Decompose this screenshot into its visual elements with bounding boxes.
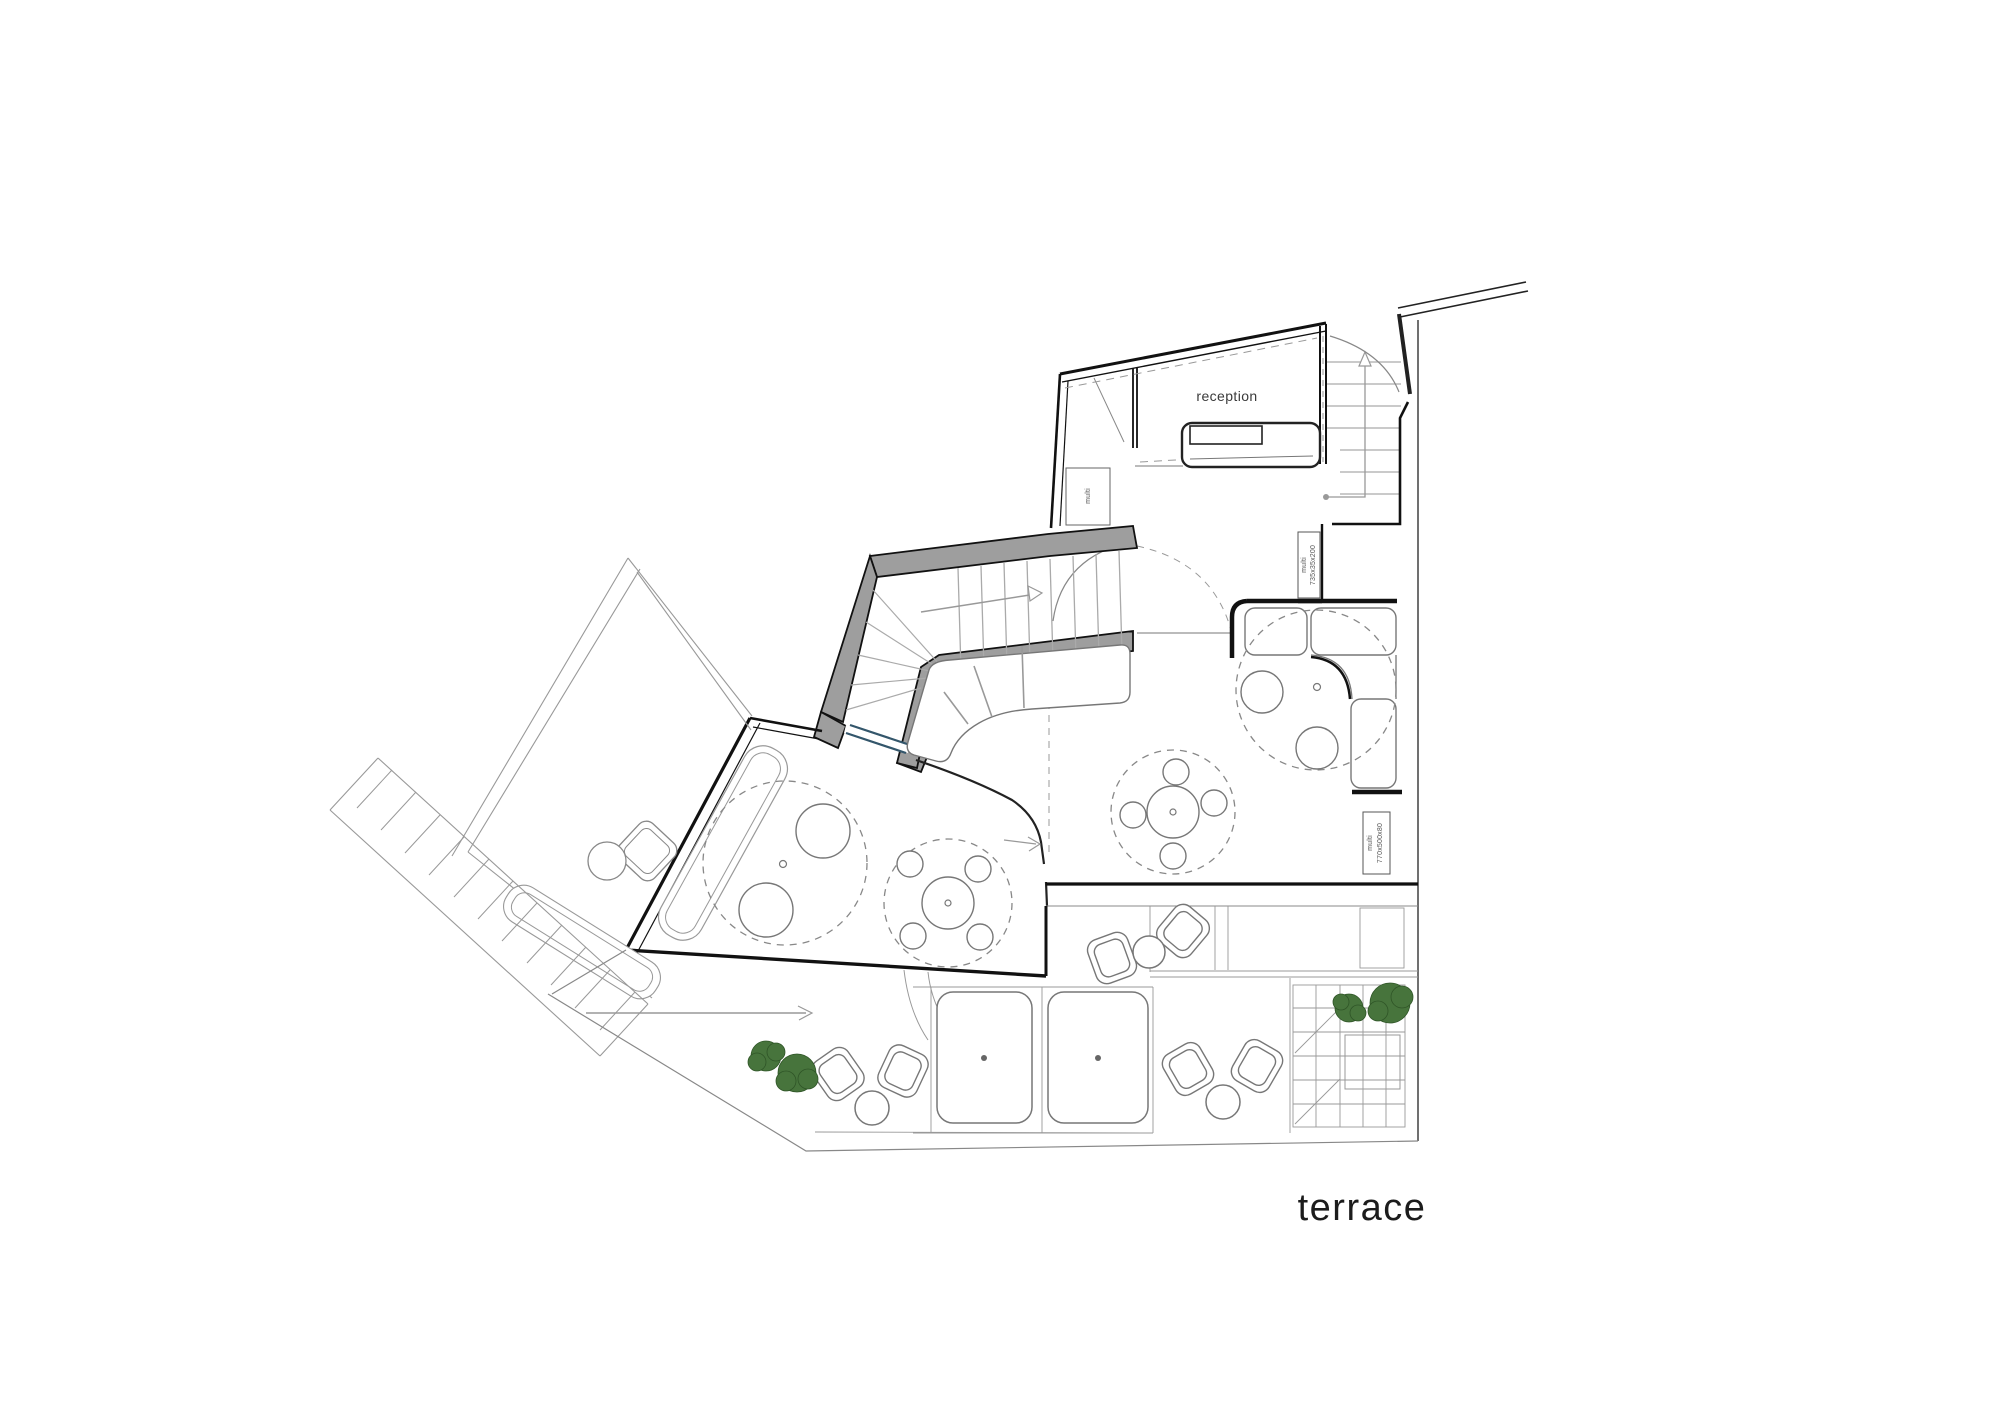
terrace-door-arrow <box>1004 840 1036 844</box>
sofa-side-table <box>1296 727 1338 769</box>
terrace-chair <box>1227 1036 1286 1097</box>
daybed-center-dot <box>1095 1055 1101 1061</box>
left-room-north-wall <box>750 718 822 731</box>
tree-foliage <box>767 1043 785 1061</box>
terrace-table <box>855 1091 889 1125</box>
tree-foliage <box>798 1069 818 1089</box>
floor-plan-svg: multi reception multi 735x35x200 <box>0 0 2000 1413</box>
dining-table-dot <box>1170 809 1176 815</box>
terrace-chair <box>1084 929 1139 987</box>
partition-door-leaf <box>1094 378 1124 442</box>
tree-foliage <box>1350 1005 1366 1021</box>
cabinet-tall-label-line2: 735x35x200 <box>1310 545 1317 585</box>
tree-foliage <box>1333 994 1349 1010</box>
sofa-cushion <box>1311 608 1396 655</box>
round-table <box>796 804 850 858</box>
outdoor-stair-treads <box>357 770 635 1030</box>
deck-grid-inner-box <box>1345 1035 1400 1089</box>
reception-room: multi reception <box>1051 323 1326 528</box>
reception-top-wall <box>1060 323 1326 374</box>
daybed-center-dot <box>981 1055 987 1061</box>
building-outline <box>1398 282 1528 1141</box>
dining-chair <box>1120 802 1146 828</box>
dining-group-2 <box>1111 750 1235 874</box>
tree-foliage <box>1391 986 1413 1008</box>
tree <box>1333 994 1366 1022</box>
sofa-zone-center-dot <box>1314 684 1321 691</box>
tree <box>776 1054 818 1092</box>
reception-desk-counter <box>1190 426 1262 444</box>
stairwell-wall-left <box>821 556 877 722</box>
terrace-area: terrace <box>548 900 1426 1229</box>
dining-chair <box>1201 790 1227 816</box>
annex-table <box>588 842 626 880</box>
cabinet-low-label-line1: multi <box>1367 835 1374 851</box>
annex-bench <box>497 878 667 1005</box>
cabinet-low-label-line2: 770x500x80 <box>1377 823 1384 863</box>
stair-arrow-head <box>1028 586 1042 601</box>
stair-guide-dot <box>1323 494 1329 500</box>
deck-grid-diagonals <box>1295 1010 1340 1124</box>
corner-sofa <box>1232 601 1402 792</box>
cabinet-tall-label-line1: multi <box>1301 557 1308 573</box>
sofa-cushion <box>1245 608 1307 655</box>
entrance-stairs <box>1323 314 1410 524</box>
stair-direction-arrow <box>921 594 1036 612</box>
reception-left-wall <box>1051 374 1060 528</box>
sofa-side-table <box>1241 671 1283 713</box>
dining-chair <box>967 924 993 950</box>
terrace-chair <box>1158 1039 1217 1100</box>
reception-label: reception <box>1196 388 1257 404</box>
dashed-swing-arc <box>1137 546 1231 630</box>
table-zone-center-dot <box>780 861 787 868</box>
annex-bench-outline <box>497 878 667 1005</box>
terrace-planter-box <box>1360 908 1404 968</box>
dining-chair <box>1160 843 1186 869</box>
reception-partition-wall <box>1133 368 1137 448</box>
ceiling-dashed-line <box>1065 338 1317 388</box>
dining-chair <box>897 851 923 877</box>
roofline <box>1398 282 1528 317</box>
terrace-label: terrace <box>1298 1187 1427 1229</box>
stair-enclosure-wall <box>1332 402 1408 524</box>
banquette-bench <box>907 645 1130 762</box>
tree-foliage <box>1368 1001 1388 1021</box>
dining-chair <box>900 923 926 949</box>
annex-room <box>452 558 752 1006</box>
entrance-stair-treads <box>1327 362 1401 494</box>
sofa-corner-inner-arc <box>1311 657 1350 699</box>
round-table <box>739 883 793 937</box>
left-room <box>626 718 1046 976</box>
window-glass-area <box>844 725 910 753</box>
left-room-south-wall <box>626 950 1046 976</box>
storage-cabinet-small-label: multi <box>1085 488 1092 504</box>
tree <box>1368 983 1413 1023</box>
sofa-cushion <box>1351 699 1396 788</box>
tree-foliage <box>776 1071 796 1091</box>
terrace-chair <box>874 1041 932 1100</box>
entrance-door-leaf <box>1399 314 1410 394</box>
terrace-table <box>1133 936 1165 968</box>
dining-group-1 <box>884 839 1012 967</box>
reception-top-wall-inner <box>1062 331 1326 382</box>
terrace-table <box>1206 1085 1240 1119</box>
dining-chair <box>965 856 991 882</box>
dining-chair <box>1163 759 1189 785</box>
dining-table-dot <box>945 900 951 906</box>
sofa-corner-cushion <box>1311 655 1396 699</box>
tree-foliage <box>748 1053 766 1071</box>
